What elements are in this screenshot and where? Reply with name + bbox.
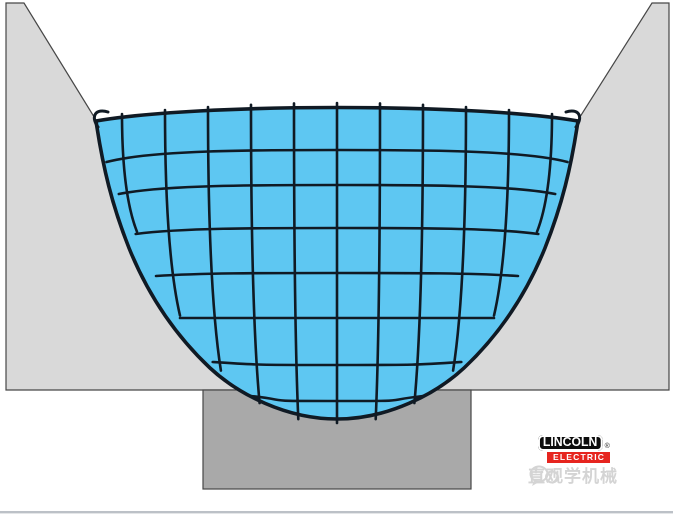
lincoln-wordmark-box: LINCOLN bbox=[538, 435, 602, 451]
registered-trademark-symbol: ® bbox=[605, 442, 610, 451]
weld-cross-section-illustration: LINCOLN ® ELECTRIC 直观学机械 bbox=[0, 0, 673, 515]
wechat-watermark: 直观学机械 bbox=[528, 462, 618, 487]
chat-bubbles-icon bbox=[528, 462, 560, 488]
lincoln-wordmark: LINCOLN bbox=[543, 435, 597, 449]
electric-wordmark: ELECTRIC bbox=[553, 452, 605, 462]
bottom-separator-line bbox=[0, 511, 673, 513]
lincoln-electric-logo: LINCOLN ® ELECTRIC bbox=[538, 435, 624, 463]
